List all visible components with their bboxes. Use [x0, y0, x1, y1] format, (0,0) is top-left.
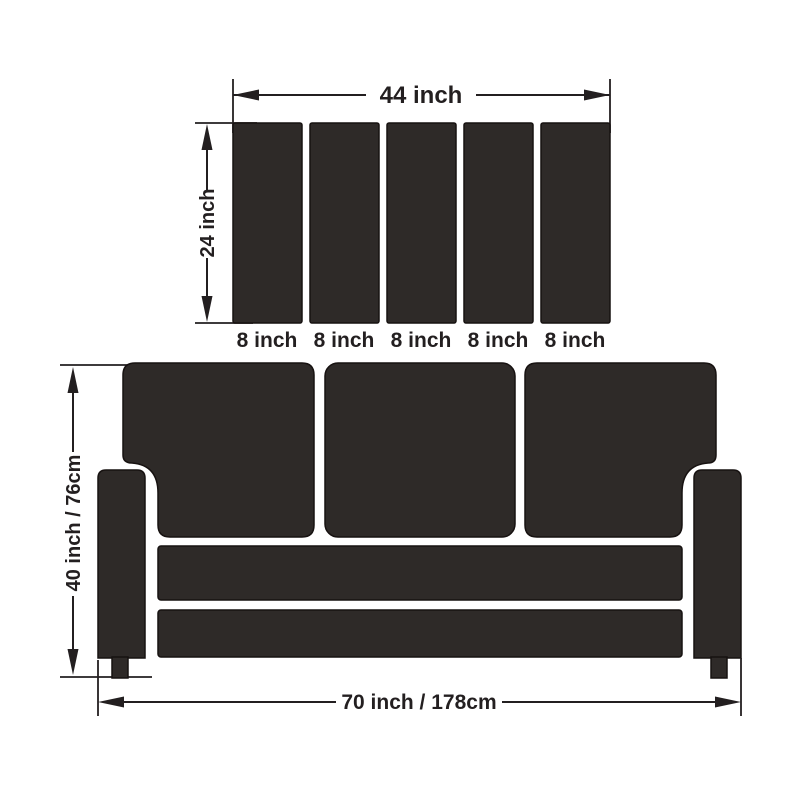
back-cushion-panels	[233, 123, 610, 323]
base-band	[158, 610, 682, 657]
dimension-diagram: 44 inch 24 inch 8 inch 8 inch 8 inch 8 i…	[0, 0, 800, 800]
arrow-up-icon	[68, 367, 79, 393]
arrow-up-icon	[202, 124, 213, 150]
leg-right	[711, 657, 727, 678]
panel-3	[387, 123, 456, 323]
sofa-cover-size-chart: 44 inch 24 inch 8 inch 8 inch 8 inch 8 i…	[0, 0, 800, 800]
armrest-right	[694, 470, 741, 658]
panel-height-label: 24 inch	[197, 189, 219, 258]
panel-5-width-label: 8 inch	[545, 329, 606, 352]
armrest-left	[98, 470, 145, 658]
panel-total-width-label: 44 inch	[380, 82, 463, 109]
sofa-width-dimension: 70 inch / 178cm	[98, 658, 741, 716]
sofa-silhouette	[98, 363, 741, 678]
leg-left	[112, 657, 128, 678]
panel-2	[310, 123, 379, 323]
sofa-width-label: 70 inch / 178cm	[341, 691, 496, 714]
panel-1	[233, 123, 302, 323]
seat-cushion-band	[158, 546, 682, 600]
arrow-left-icon	[233, 90, 259, 101]
panel-2-width-label: 8 inch	[314, 329, 375, 352]
arrow-right-icon	[715, 697, 741, 708]
arrow-left-icon	[98, 697, 124, 708]
arrow-down-icon	[68, 649, 79, 675]
panel-3-width-label: 8 inch	[391, 329, 452, 352]
arrow-right-icon	[584, 90, 610, 101]
back-cushion-middle	[325, 363, 515, 537]
back-cushion-left	[123, 363, 314, 537]
panel-4	[464, 123, 533, 323]
panel-1-width-label: 8 inch	[237, 329, 298, 352]
panel-width-labels: 8 inch 8 inch 8 inch 8 inch 8 inch	[237, 329, 606, 352]
back-cushion-right	[525, 363, 716, 537]
sofa-height-label: 40 inch / 76cm	[63, 455, 85, 592]
panel-4-width-label: 8 inch	[468, 329, 529, 352]
panel-5	[541, 123, 610, 323]
arrow-down-icon	[202, 296, 213, 322]
